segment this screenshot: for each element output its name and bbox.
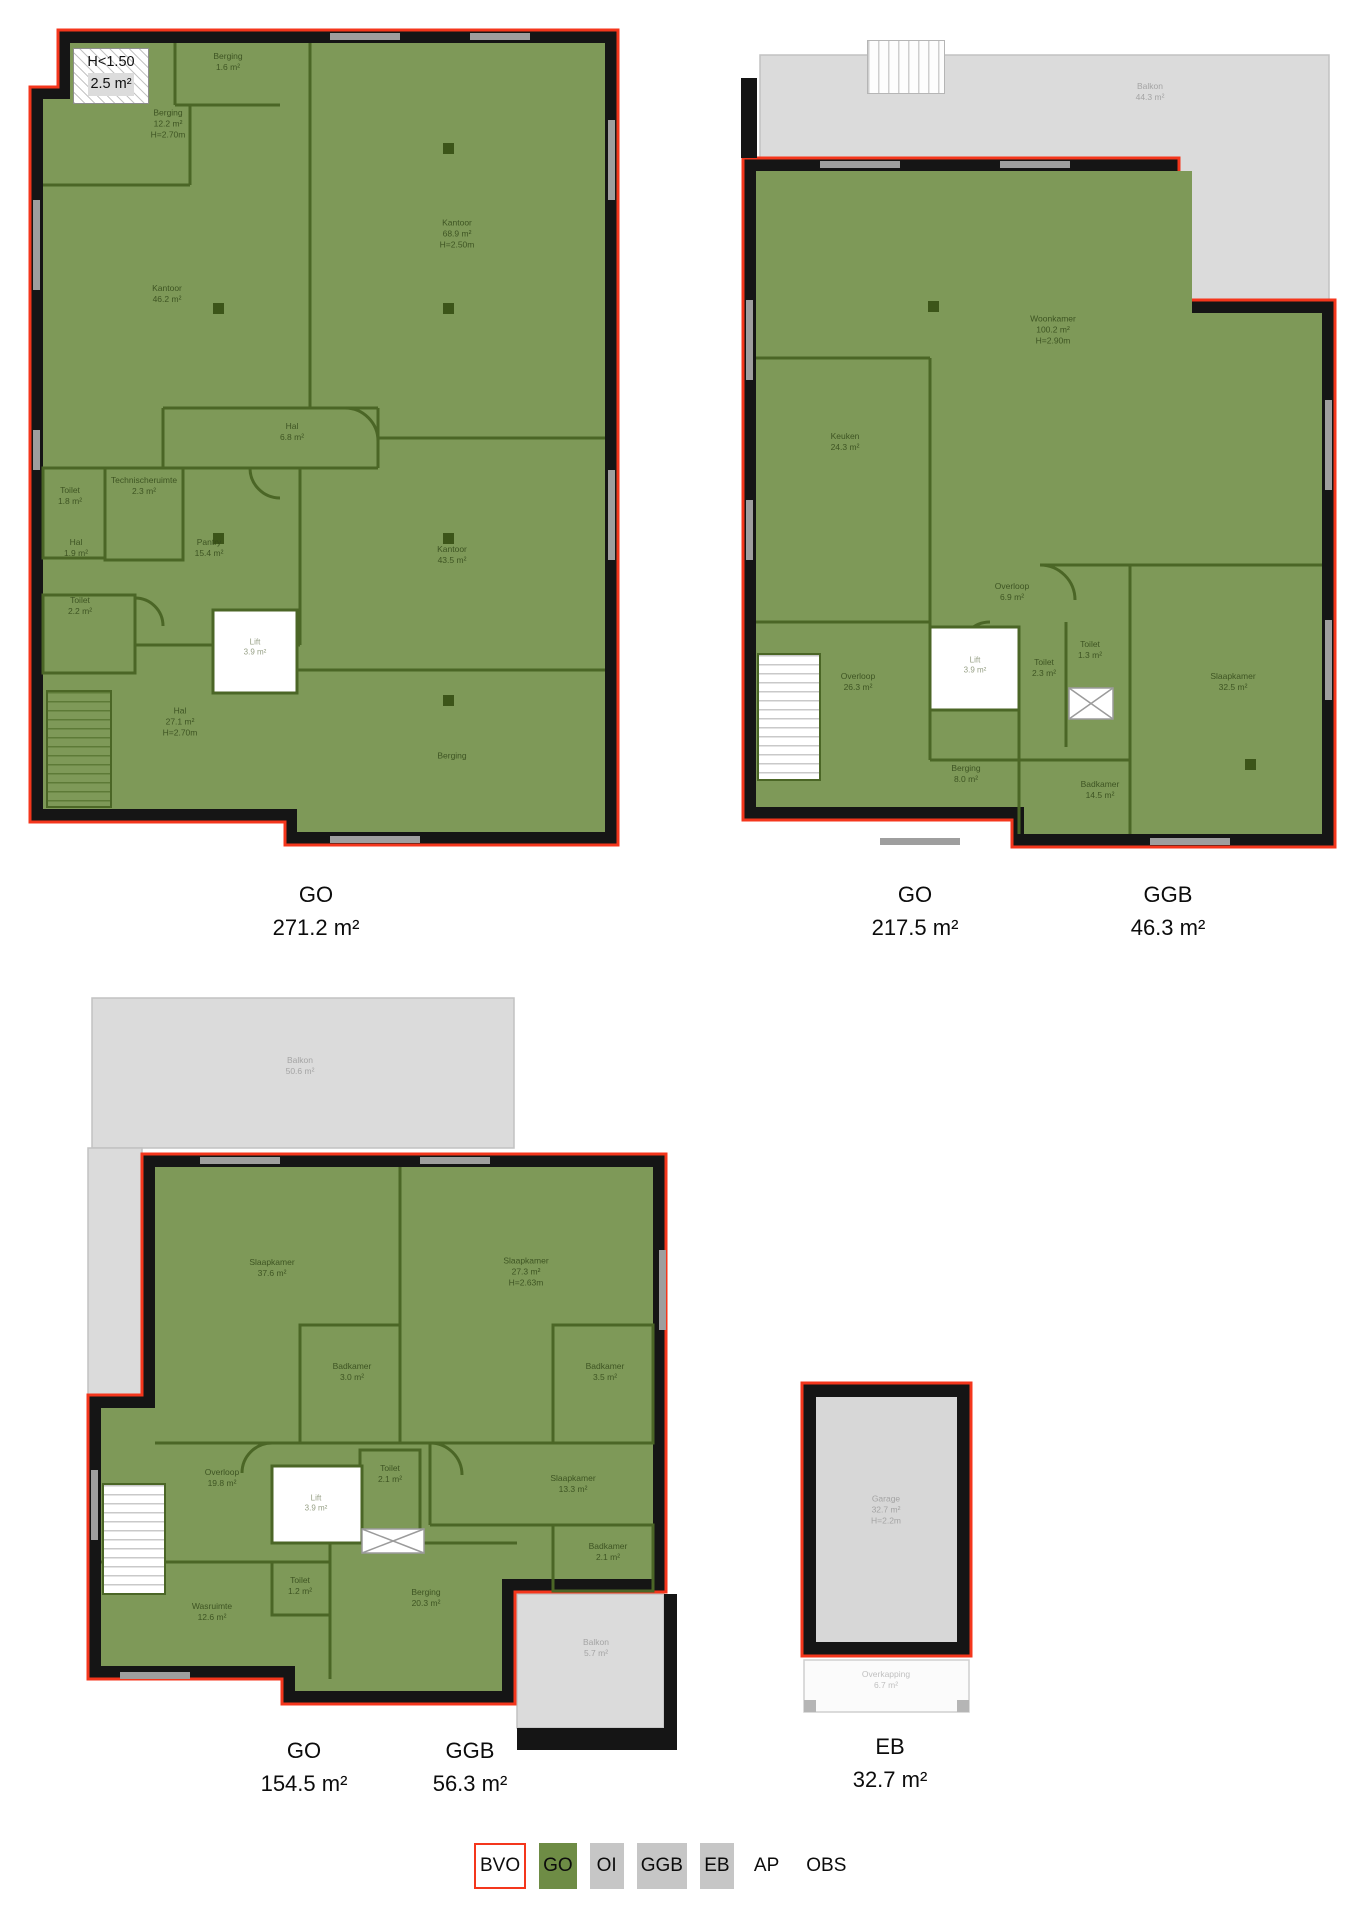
legend-item-go: GO	[539, 1843, 577, 1889]
room-label-kantoor: Kantoor43.5 m²	[437, 544, 467, 566]
area-summary-ggb: GGB46.3 m²	[1131, 878, 1206, 944]
room-label-kantoor: Kantoor68.9 m²H=2.50m	[440, 217, 475, 250]
room-label-berging: Berging20.3 m²	[411, 1587, 440, 1609]
room-label-wasruimte: Wasruimte12.6 m²	[192, 1601, 232, 1623]
room-label-lift: Lift3.9 m²	[305, 1494, 328, 1515]
room-label-slaapkamer: Slaapkamer27.3 m²H=2.63m	[503, 1255, 548, 1288]
room-label-garage: Garage32.7 m²H=2.2m	[871, 1493, 901, 1526]
legend-item-bvo: BVO	[474, 1843, 526, 1889]
legend-item-ap: AP	[747, 1843, 786, 1889]
legend-item-eb: EB	[700, 1843, 734, 1889]
room-label-badkamer: Badkamer3.0 m²	[333, 1361, 372, 1383]
room-label-hal: Hal1.9 m²	[64, 537, 88, 559]
room-label-toilet: Toilet2.1 m²	[378, 1463, 402, 1485]
room-label-badkamer: Badkamer2.1 m²	[589, 1541, 628, 1563]
room-label-berging: Berging	[437, 750, 466, 761]
room-label-toilet: Toilet2.2 m²	[68, 595, 92, 617]
room-label-toilet: Toilet1.8 m²	[58, 485, 82, 507]
room-label-lift: Lift3.9 m²	[244, 638, 267, 659]
room-label-hal: Hal27.1 m²H=2.70m	[163, 705, 198, 738]
room-label-overloop: Overloop19.8 m²	[205, 1467, 240, 1489]
room-label-woonkamer: Woonkamer100.2 m²H=2.90m	[1030, 313, 1076, 346]
room-label-berging: Berging12.2 m²H=2.70m	[151, 107, 186, 140]
room-label-berging: Berging8.0 m²	[951, 763, 980, 785]
legend-item-obs: OBS	[799, 1843, 853, 1889]
room-label-berging: Berging1.6 m²	[213, 51, 242, 73]
room-label-lift: Lift3.9 m²	[964, 656, 987, 677]
room-label-slaapkamer: Slaapkamer32.5 m²	[1210, 671, 1255, 693]
area-summary-go: GO271.2 m²	[273, 878, 360, 944]
room-label-overkapping: Overkapping6.7 m²	[862, 1669, 910, 1691]
area-summary-eb: EB32.7 m²	[853, 1730, 928, 1796]
room-label-hal: Hal6.8 m²	[280, 421, 304, 443]
room-label-badkamer: Badkamer14.5 m²	[1081, 779, 1120, 801]
area-summary-ggb: GGB56.3 m²	[433, 1734, 508, 1800]
legend-item-ggb: GGB	[637, 1843, 687, 1889]
room-label-toilet: Toilet1.3 m²	[1078, 639, 1102, 661]
room-label-overloop: Overloop6.9 m²	[995, 581, 1030, 603]
room-label-kantoor: Kantoor46.2 m²	[152, 283, 182, 305]
room-label-balkon: Balkon50.6 m²	[286, 1055, 315, 1077]
area-summary-go: GO154.5 m²	[261, 1734, 348, 1800]
room-label-balkon: Balkon44.3 m²	[1136, 81, 1165, 103]
room-label-overloop: Overloop26.3 m²	[841, 671, 876, 693]
legend: BVOGOOIGGBEBAPOBS	[474, 1843, 853, 1889]
legend-item-oi: OI	[590, 1843, 624, 1889]
room-label-slaapkamer: Slaapkamer37.6 m²	[249, 1257, 294, 1279]
room-label-badkamer: Badkamer3.5 m²	[586, 1361, 625, 1383]
label-layer: Berging1.6 m²Berging12.2 m²H=2.70mKantoo…	[0, 0, 1358, 1920]
room-label-pantry: Pantry15.4 m²	[195, 537, 224, 559]
room-label-balkon: Balkon5.7 m²	[583, 1637, 609, 1659]
floorplan-sheet: H<1.50 2.5 m² Berging1.6 m²Berging12.2 m…	[0, 0, 1358, 1920]
room-label-toilet: Toilet2.3 m²	[1032, 657, 1056, 679]
room-label-toilet: Toilet1.2 m²	[288, 1575, 312, 1597]
room-label-technischeruimte: Technischeruimte2.3 m²	[111, 475, 177, 497]
area-summary-go: GO217.5 m²	[872, 878, 959, 944]
room-label-slaapkamer: Slaapkamer13.3 m²	[550, 1473, 595, 1495]
room-label-keuken: Keuken24.3 m²	[831, 431, 860, 453]
